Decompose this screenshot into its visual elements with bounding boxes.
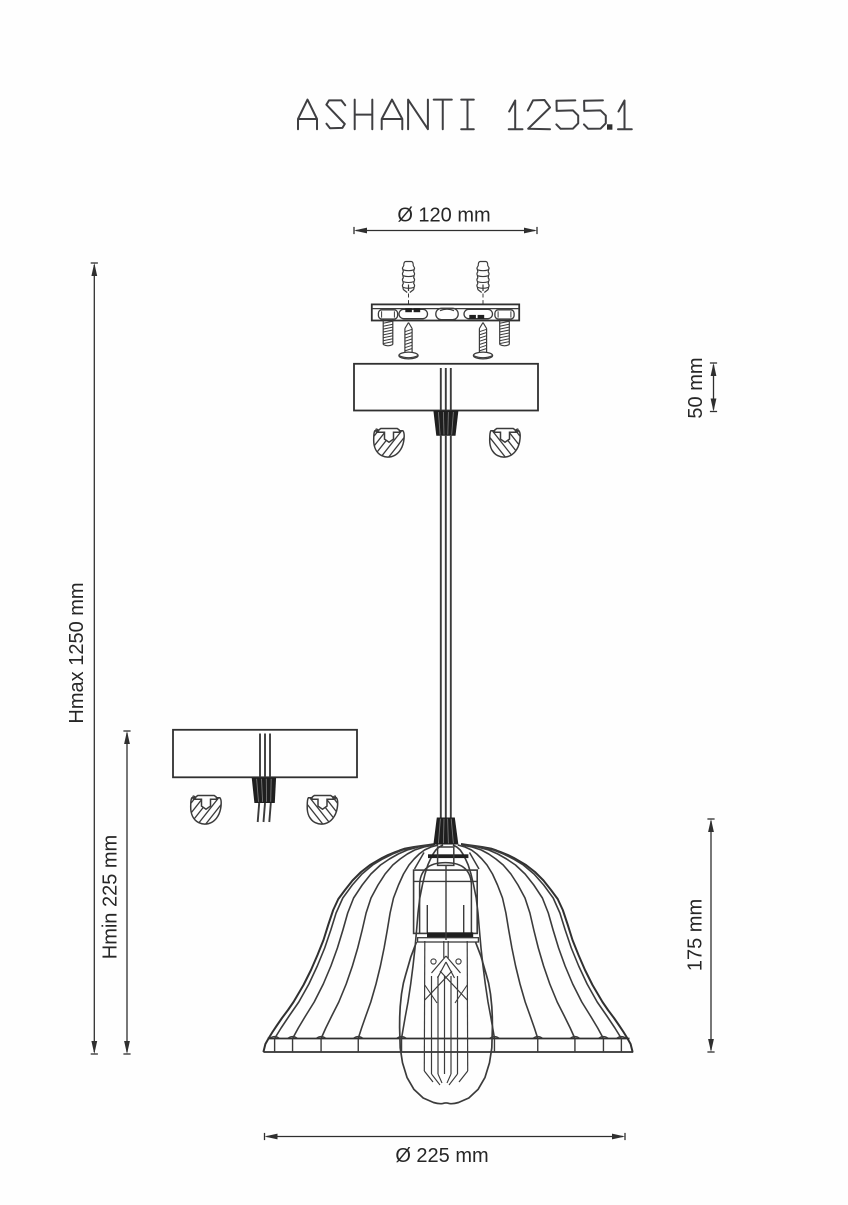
- svg-text:175 mm: 175 mm: [685, 899, 707, 971]
- svg-text:Hmin 225 mm: Hmin 225 mm: [100, 835, 122, 959]
- svg-text:Hmax 1250 mm: Hmax 1250 mm: [66, 582, 88, 723]
- svg-text:Ø 120 mm: Ø 120 mm: [397, 205, 490, 227]
- svg-text:50 mm: 50 mm: [685, 357, 707, 418]
- svg-text:Ø 225 mm: Ø 225 mm: [395, 1145, 488, 1167]
